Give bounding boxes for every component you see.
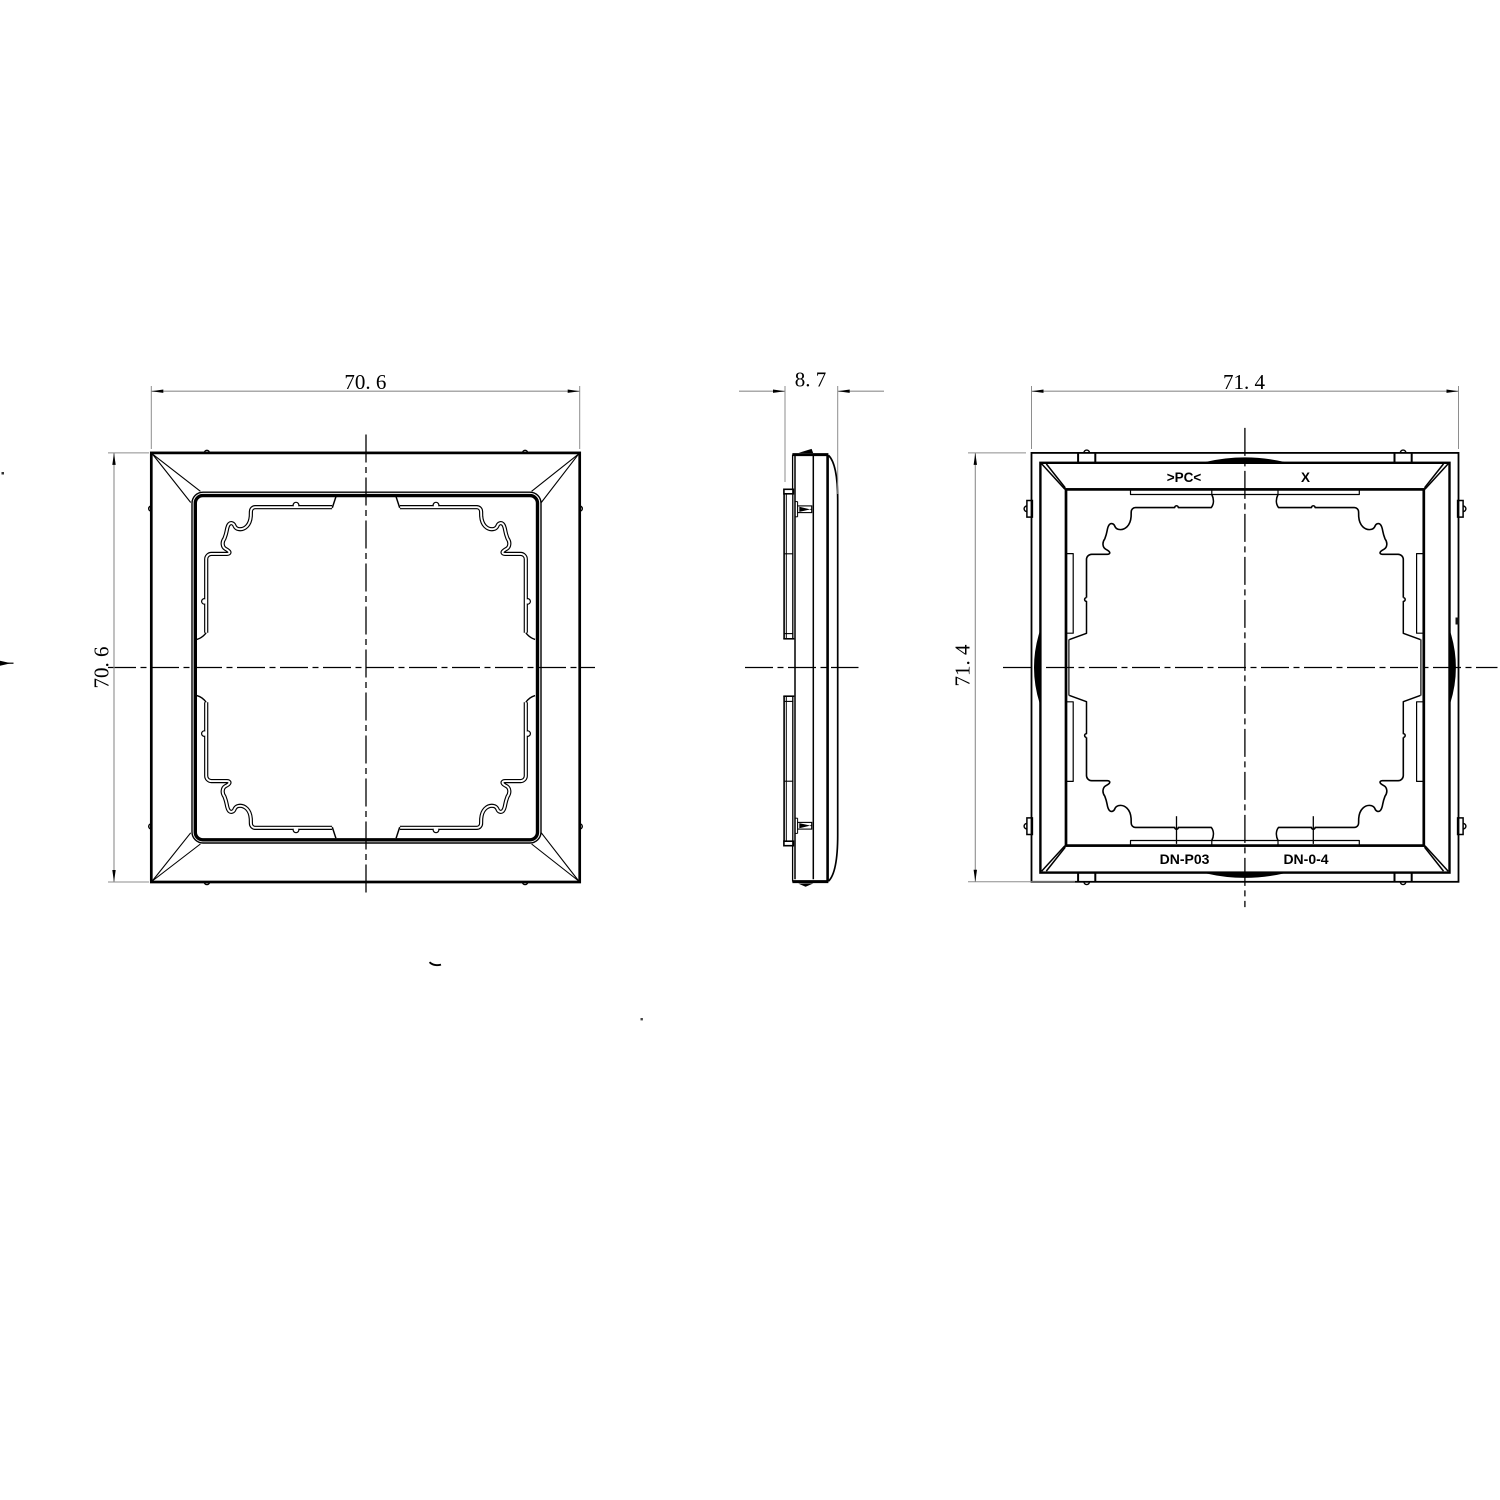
svg-text:70. 6: 70. 6	[90, 647, 114, 689]
svg-text:71. 4: 71. 4	[1223, 370, 1266, 394]
svg-text:71. 4: 71. 4	[951, 644, 975, 687]
svg-text:X: X	[1301, 470, 1310, 485]
svg-text:8. 7: 8. 7	[795, 368, 827, 392]
svg-text:DN-P03: DN-P03	[1160, 851, 1210, 867]
svg-text:DN-0-4: DN-0-4	[1283, 851, 1328, 867]
svg-text:>PC<: >PC<	[1167, 470, 1202, 485]
svg-text:70. 6: 70. 6	[344, 370, 386, 394]
